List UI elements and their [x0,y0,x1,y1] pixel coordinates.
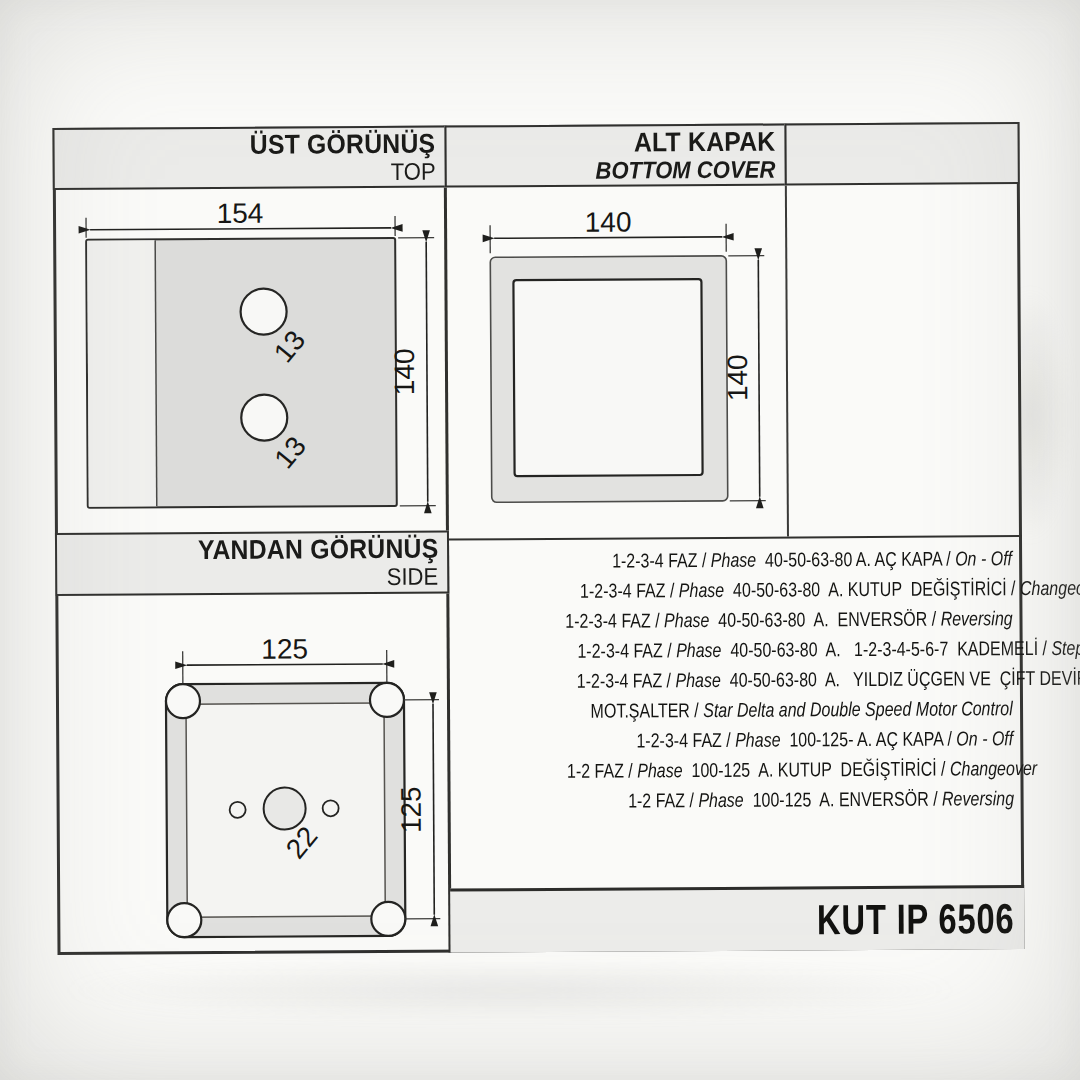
panel-header-bottom-cover: ALT KAPAK BOTTOM COVER [444,123,786,187]
top-view-title-turkish: ÜST GÖRÜNÜŞ [250,129,436,159]
spec-line: 1-2-3-4 FAZ / Phase 40-50-63-80 A. AÇ KA… [448,543,1022,577]
top-view-width-dim: 154 [217,198,264,229]
top-view-height-dim: 140 [389,348,420,395]
corner-screw-bottom-left [167,903,201,937]
spec-line: 1-2-3-4 FAZ / Phase 40-50-63-80 A. YILDI… [449,663,1023,697]
small-hole-right [323,800,339,816]
panel-header-top-view: ÜST GÖRÜNÜŞ TOP [52,126,446,190]
height-dim-arrow [426,242,428,502]
bottom-cover-drawing: 140 140 [446,185,788,539]
height-dim-arrow [758,260,759,497]
corner-screw-bottom-right [371,902,405,936]
bottom-cover-title-turkish: ALT KAPAK [634,127,776,157]
panel-header-side-view: YANDAN GÖRÜNÜŞ SIDE [55,531,449,596]
side-view-title-turkish: YANDAN GÖRÜNÜŞ [198,535,439,565]
spec-line: 1-2-3-4 FAZ / Phase 40-50-63-80 A. 1-2-3… [449,633,1023,667]
cover-height-dim: 140 [722,354,753,401]
spec-line: 1-2 FAZ / Phase 100-125 A. KUTUP DEĞİŞTİ… [449,753,1023,787]
small-hole-left [230,802,246,818]
spec-line: 1-2-3-4 FAZ / Phase 100-125- A. AÇ KAPA … [449,723,1023,757]
datasheet: ÜST GÖRÜNÜŞ TOP ALT KAPAK BOTTOM COVER Y… [0,0,1080,1080]
photo-background: ÜST GÖRÜNÜŞ TOP ALT KAPAK BOTTOM COVER Y… [0,0,1080,1080]
model-code-box: KUT IP 6506 [450,885,1024,953]
cover-inner-square [513,279,702,476]
side-view-title-english: SIDE [387,564,439,590]
side-width-dim: 125 [261,633,308,664]
spec-line: 1-2-3-4 FAZ / Phase 40-50-63-80 A. ENVER… [448,603,1022,637]
hole-lower [241,395,287,441]
cover-width-dim: 140 [585,206,632,237]
spec-line: 1-2 FAZ / Phase 100-125 A. ENVERSÖR / Re… [450,783,1024,817]
top-view-title-english: TOP [391,158,436,184]
top-plate-side-strip [87,240,157,506]
model-code: KUT IP 6506 [817,895,1015,944]
bottom-cover-title-english: BOTTOM COVER [596,156,776,183]
panel-header-empty-cell [784,122,1019,185]
height-dim-arrow [433,704,434,915]
top-view-drawing: 13 13 154 140 [53,188,448,533]
spec-line: 1-2-3-4 FAZ / Phase 40-50-63-80 A. KUTUP… [448,573,1022,607]
spec-text-block: 1-2-3-4 FAZ / Phase 40-50-63-80 A. AÇ KA… [448,535,1024,888]
side-view-drawing: 22 125 125 [55,594,450,955]
spec-line: MOT.ŞALTER / Star Delta and Double Speed… [449,693,1023,727]
corner-screw-top-right [370,683,404,717]
side-height-dim: 125 [396,786,427,833]
corner-screw-top-left [166,684,200,718]
hole-upper [240,289,286,335]
